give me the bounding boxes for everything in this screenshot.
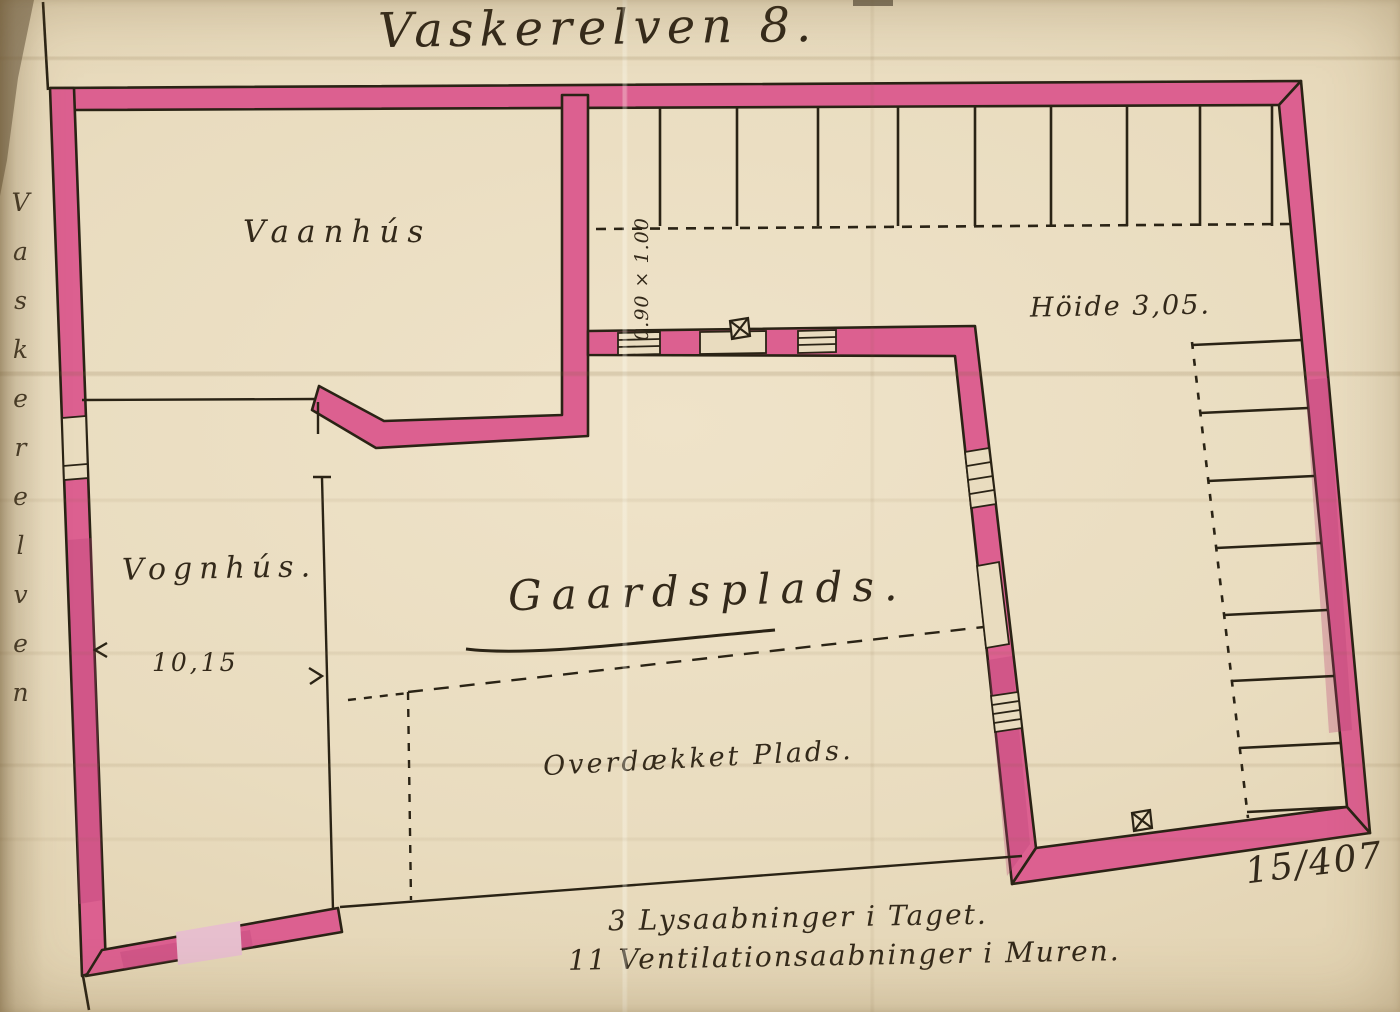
paper-top-edge-mark [853,0,893,6]
vaanhus-east-and-south-wall [312,95,588,448]
top-stall-partitions [596,104,1290,229]
stall-partition-line [1208,476,1314,481]
window-mullion-line [618,346,660,347]
stall-partition-line [1192,340,1302,345]
vognhus-south-door-gap [176,921,242,965]
street-line-top [43,2,48,90]
stall-partition-line [1239,743,1340,748]
gaardsplads-label: Gaardsplads. [507,561,907,620]
vognhus-label: Vognhús. [122,549,318,587]
stall-partition-line [1224,610,1327,615]
measure-arrow-right [309,668,322,684]
window-mullion-line [798,344,836,345]
west-wall-window [62,416,88,480]
north-outer-wall [50,81,1301,110]
stall-partition-line [1200,408,1308,413]
street-line-bottom [83,976,89,1010]
top-stall-front-dashed-line [596,224,1290,229]
right-stall-front-dashed-line [1192,342,1248,818]
vognhus-east-line [322,478,333,910]
vaanhus-south-line [82,399,316,400]
covered-area-dashed-west-stub [348,693,408,700]
north-courtyard-window-2 [798,330,836,353]
ventilation-marker-icon [730,318,750,339]
height-note-label: Höide 3,05. [1030,289,1211,323]
paper-corner-shadow [0,0,34,196]
floor-plan-drawing [0,0,1400,1012]
street-name-label: Vaskerelven [6,188,35,728]
covered-area-dashed-west [408,692,411,900]
page-title: Vaskerelven 8. [378,0,818,59]
vognhus-width-label: 10,15 [152,648,239,677]
ventilation-marker-icon [1132,810,1152,831]
roof-lights-note: 3 Lysaabninger i Taget. [608,898,988,938]
measure-arrow-left [95,643,107,657]
gaardsplads-underline-flourish [466,630,775,651]
gate-dimension-label: 0.90 × 1.00 [631,217,653,341]
vaanhus-label: Vaanhús [243,214,431,250]
scanned-floor-plan-page: Vaskerelven 8. Vaskerelven Vaanhús 0.90 … [0,0,1400,1012]
stall-partition-line [1231,676,1334,681]
window-mullion-line [798,337,836,338]
stall-partition-line [1216,543,1321,548]
